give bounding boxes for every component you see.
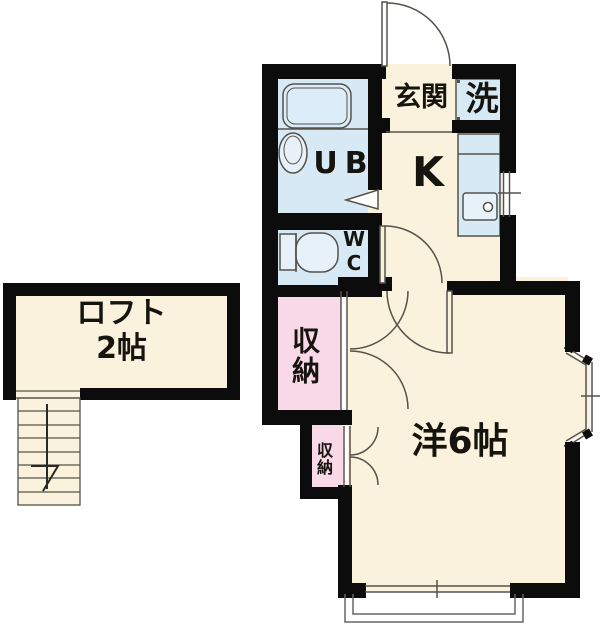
kitchen-counter-icon [458, 134, 500, 236]
balcony [345, 594, 523, 622]
closet-large-label: 収納 [290, 314, 318, 398]
laundry-label: 洗 [459, 81, 505, 117]
closet-small-label: 収納 [315, 436, 331, 482]
bathtub-icon [283, 84, 351, 128]
toilet-label: WC [344, 224, 364, 278]
toilet-icon [280, 233, 338, 272]
entrance-label: 玄関 [386, 83, 456, 113]
floor-plan: 玄関 洗 UB WC K 収納 収納 洋6帖 ロフト 2帖 [0, 0, 600, 624]
western-room-label: 洋6帖 [396, 422, 524, 462]
faucet-icon [484, 203, 493, 212]
washbasin-icon [279, 133, 307, 173]
unit-bath-label: UB [308, 147, 380, 180]
loft-name: ロフト [16, 297, 227, 332]
loft-size: 2帖 [16, 332, 227, 367]
kitchen-label: K [400, 150, 456, 195]
loft-label: ロフト 2帖 [16, 297, 227, 366]
